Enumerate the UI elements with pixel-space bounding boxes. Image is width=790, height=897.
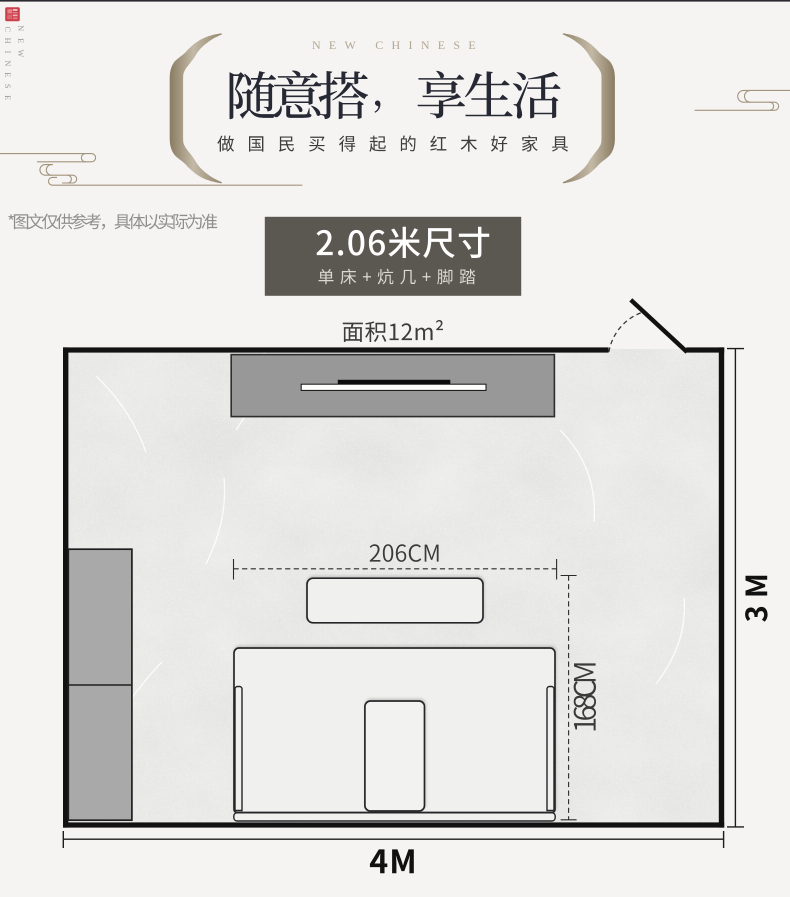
- svg-text:NEW CHINESE: NEW CHINESE: [312, 38, 484, 52]
- svg-text:W: W: [16, 50, 25, 58]
- svg-text:E: E: [3, 72, 12, 77]
- svg-text:N: N: [3, 60, 12, 66]
- svg-text:I: I: [3, 51, 12, 54]
- svg-text:H: H: [3, 38, 12, 44]
- svg-text:E: E: [3, 95, 12, 100]
- svg-text:E: E: [16, 38, 25, 43]
- svg-text:N: N: [16, 25, 25, 31]
- svg-text:S: S: [3, 84, 12, 89]
- svg-text:C: C: [3, 26, 12, 32]
